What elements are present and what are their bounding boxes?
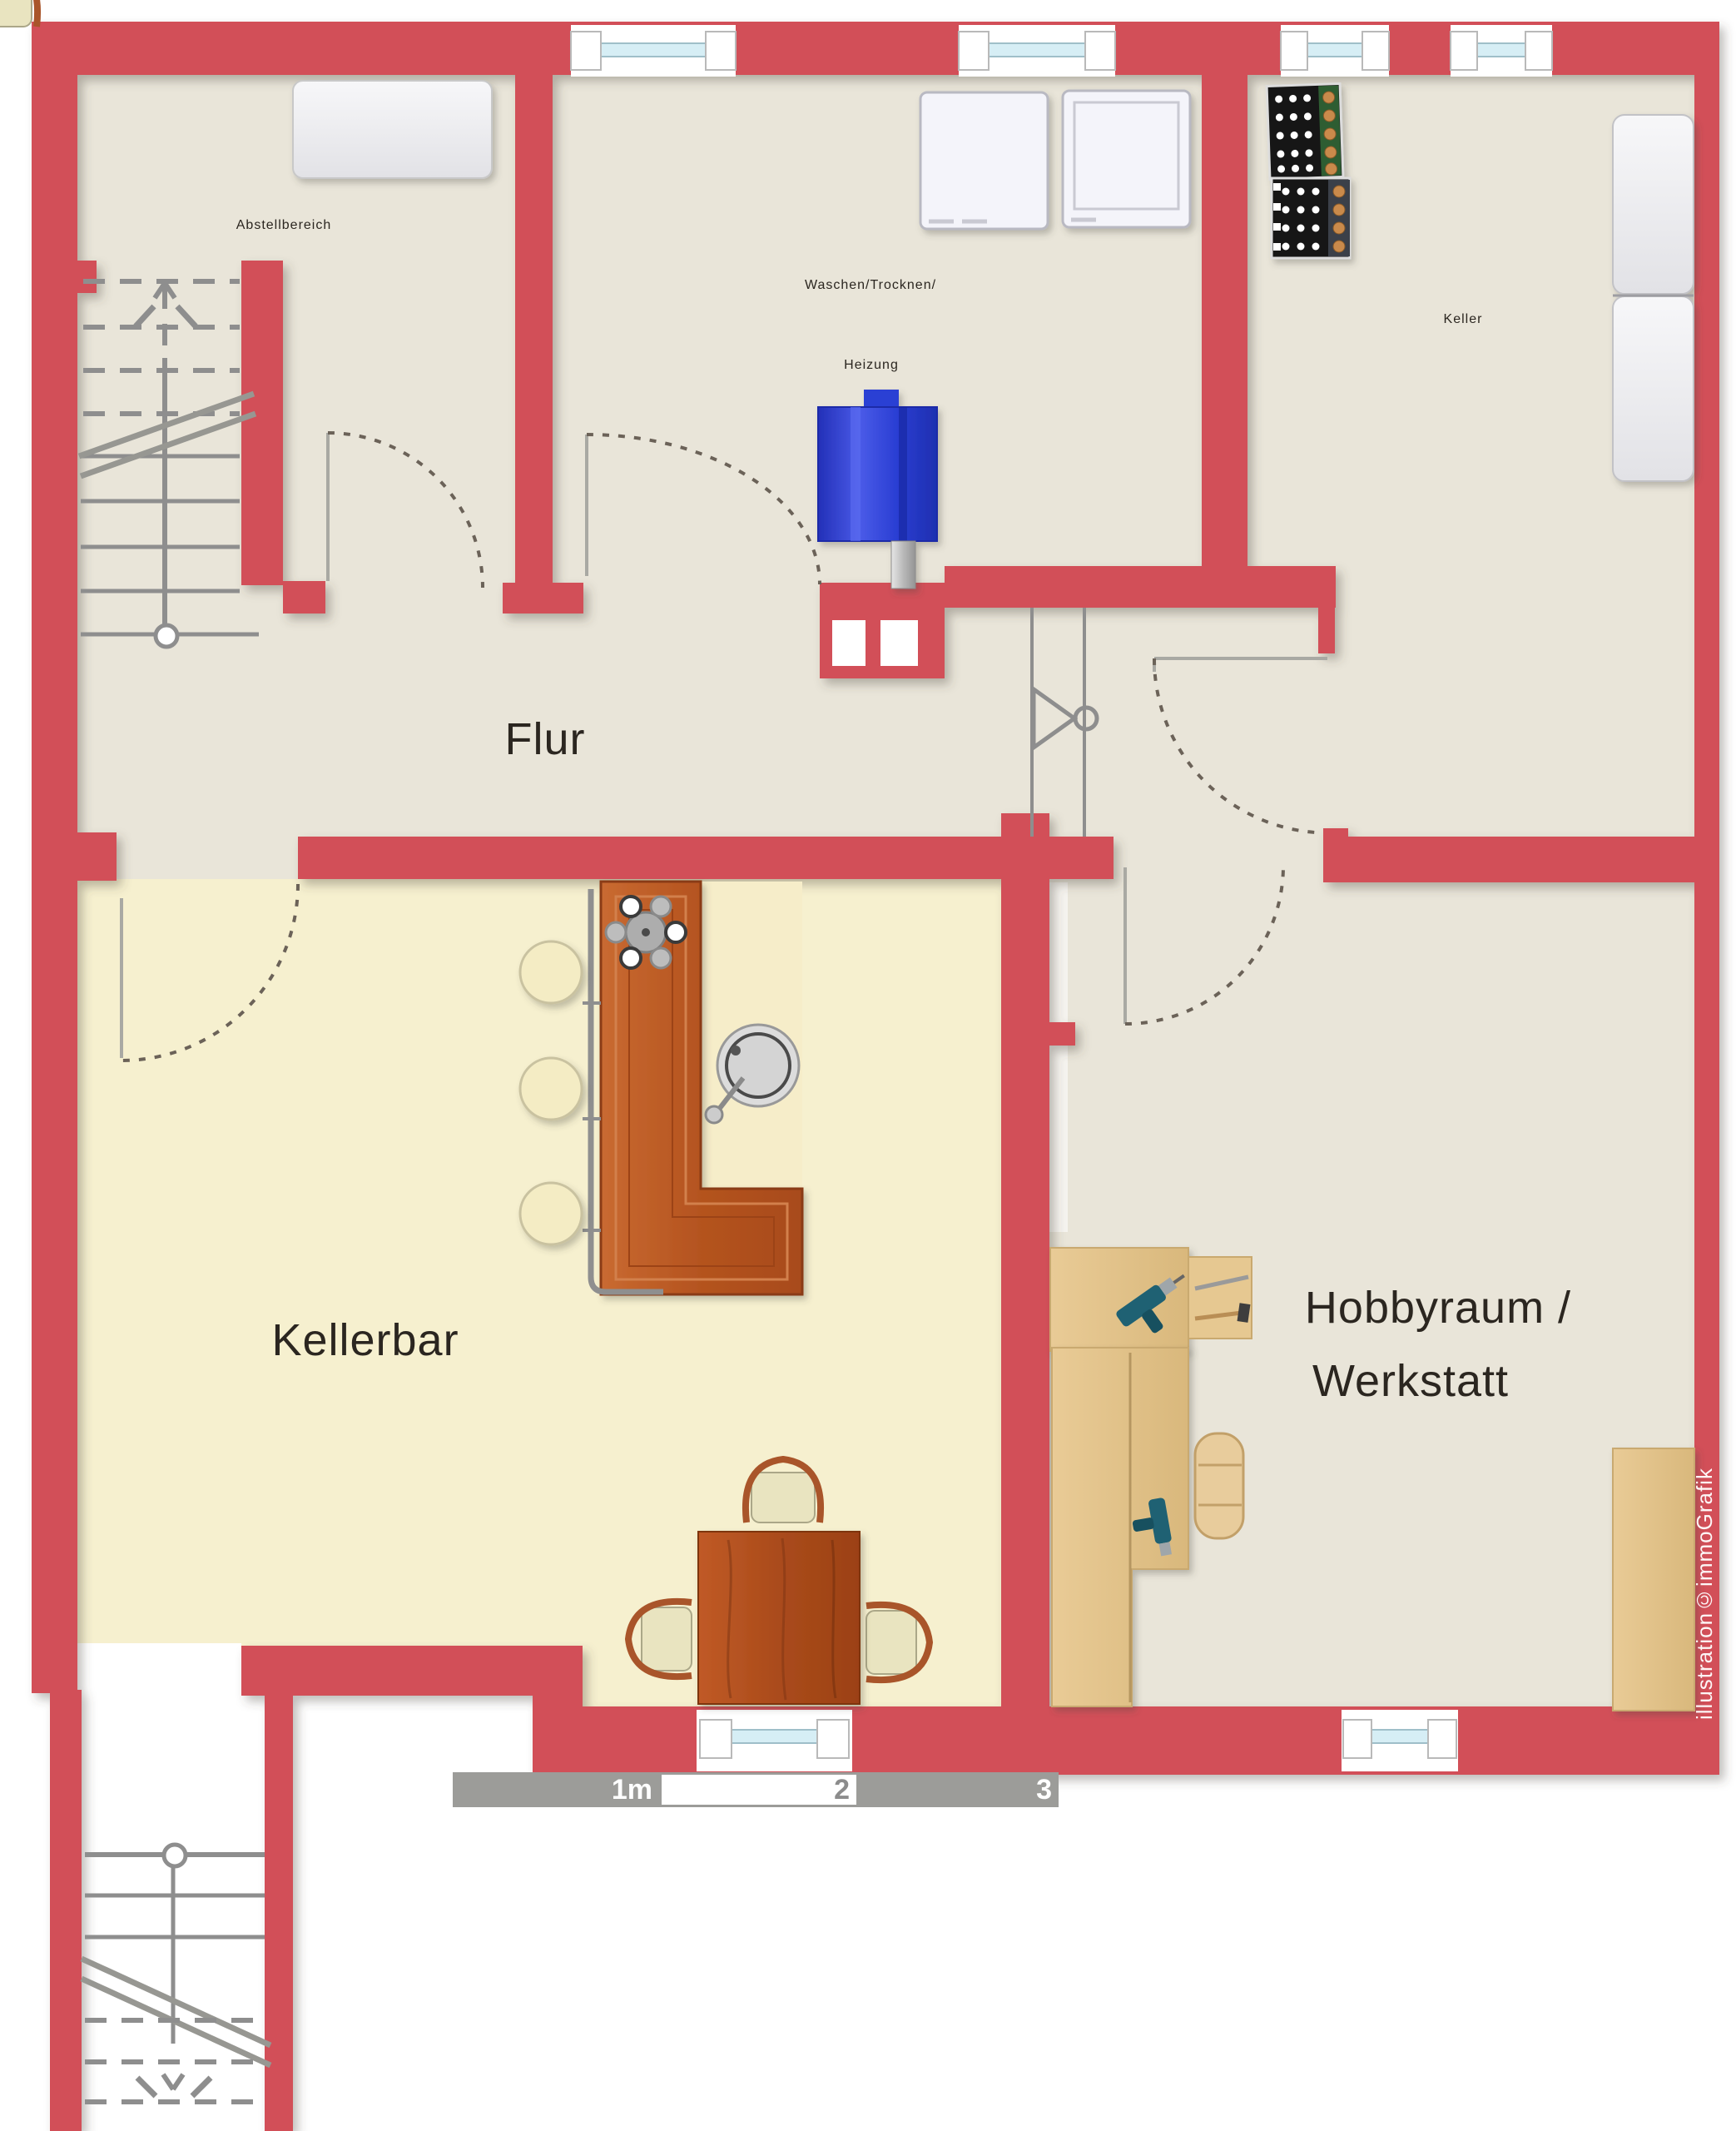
- wall-corridor-bottom: [1323, 837, 1694, 882]
- wall-stairwell-right: [265, 1660, 293, 2131]
- wall-staircase-foot: [283, 581, 325, 613]
- chimney-flue-1: [832, 620, 866, 666]
- window-symbol: [1281, 25, 1389, 77]
- bar-stool-symbol: [520, 941, 582, 1244]
- wall-keller-stub: [1318, 605, 1335, 653]
- wall-kellerbar-hobby: [1001, 813, 1049, 1706]
- wall-abstell-waschen: [515, 73, 553, 584]
- window-symbol: [571, 25, 736, 77]
- wall-flur-left-stub: [77, 832, 117, 881]
- wall-stairwell-left: [50, 1690, 82, 2131]
- room-label-hobbyraum-line1: Hobbyraum /: [1305, 1282, 1571, 1334]
- wall-stair-stub: [77, 261, 97, 293]
- room-label-abstellbereich: Abstellbereich: [236, 218, 332, 233]
- wall-staircase: [241, 261, 283, 585]
- washing-machine-symbol: [920, 92, 1048, 229]
- floor-plan: Abstellbereich Waschen/Trocknen/ Heizung…: [0, 0, 1736, 2131]
- wall-waschen-keller: [1202, 73, 1247, 573]
- bar-table-symbol: [698, 1532, 860, 1704]
- workbench-symbol: [1050, 1248, 1188, 1351]
- workbench-symbol: [1613, 1448, 1694, 1711]
- wall-corridor-cap: [1323, 828, 1348, 882]
- wall-highlight: [1049, 882, 1068, 1232]
- window-symbol: [1342, 1710, 1458, 1771]
- stairs-down-symbol: [82, 1845, 270, 2102]
- chimney-flue-2: [880, 620, 918, 666]
- room-label-kellerbar: Kellerbar: [271, 1314, 459, 1366]
- freezer-symbol: [1613, 115, 1694, 481]
- room-label-flur: Flur: [505, 713, 586, 765]
- wall-bottom-step: [533, 1646, 583, 1775]
- floor-kellerbar: [77, 879, 1001, 1706]
- cabinet-symbol: [293, 81, 492, 178]
- scale-segment-1m: 1m: [453, 1772, 659, 1807]
- room-label-waschen-line1: Waschen/Trocknen/: [805, 278, 936, 293]
- pipe-symbol: [891, 541, 915, 589]
- drawer-symbol: [1188, 1257, 1252, 1339]
- watermark-text: illustration©immoGrafik: [1692, 1415, 1720, 1773]
- floor-landing-opening: [70, 1643, 241, 1775]
- wall-left: [32, 22, 77, 1693]
- wall-hobby-stub: [1047, 1022, 1075, 1046]
- wall-flur-bottom: [298, 837, 1114, 879]
- scale-bar: 1m 2 3: [453, 1772, 1059, 1807]
- room-label-hobbyraum-line2: Werkstatt: [1312, 1355, 1509, 1407]
- wall-abstell-cap: [503, 583, 583, 613]
- wine-rack-symbol: [1267, 83, 1350, 258]
- room-label-waschen-line2: Heizung: [844, 358, 899, 373]
- scale-segment-3: 3: [859, 1772, 1059, 1807]
- scale-segment-2: 2: [659, 1772, 859, 1807]
- window-symbol: [959, 25, 1115, 77]
- wall-waschen-bottom: [945, 566, 1336, 608]
- room-label-keller: Keller: [1444, 312, 1483, 327]
- chair-symbol: [1195, 1433, 1243, 1538]
- window-symbol: [697, 1710, 852, 1771]
- window-symbol: [1451, 25, 1552, 77]
- dryer-symbol: [1063, 91, 1190, 227]
